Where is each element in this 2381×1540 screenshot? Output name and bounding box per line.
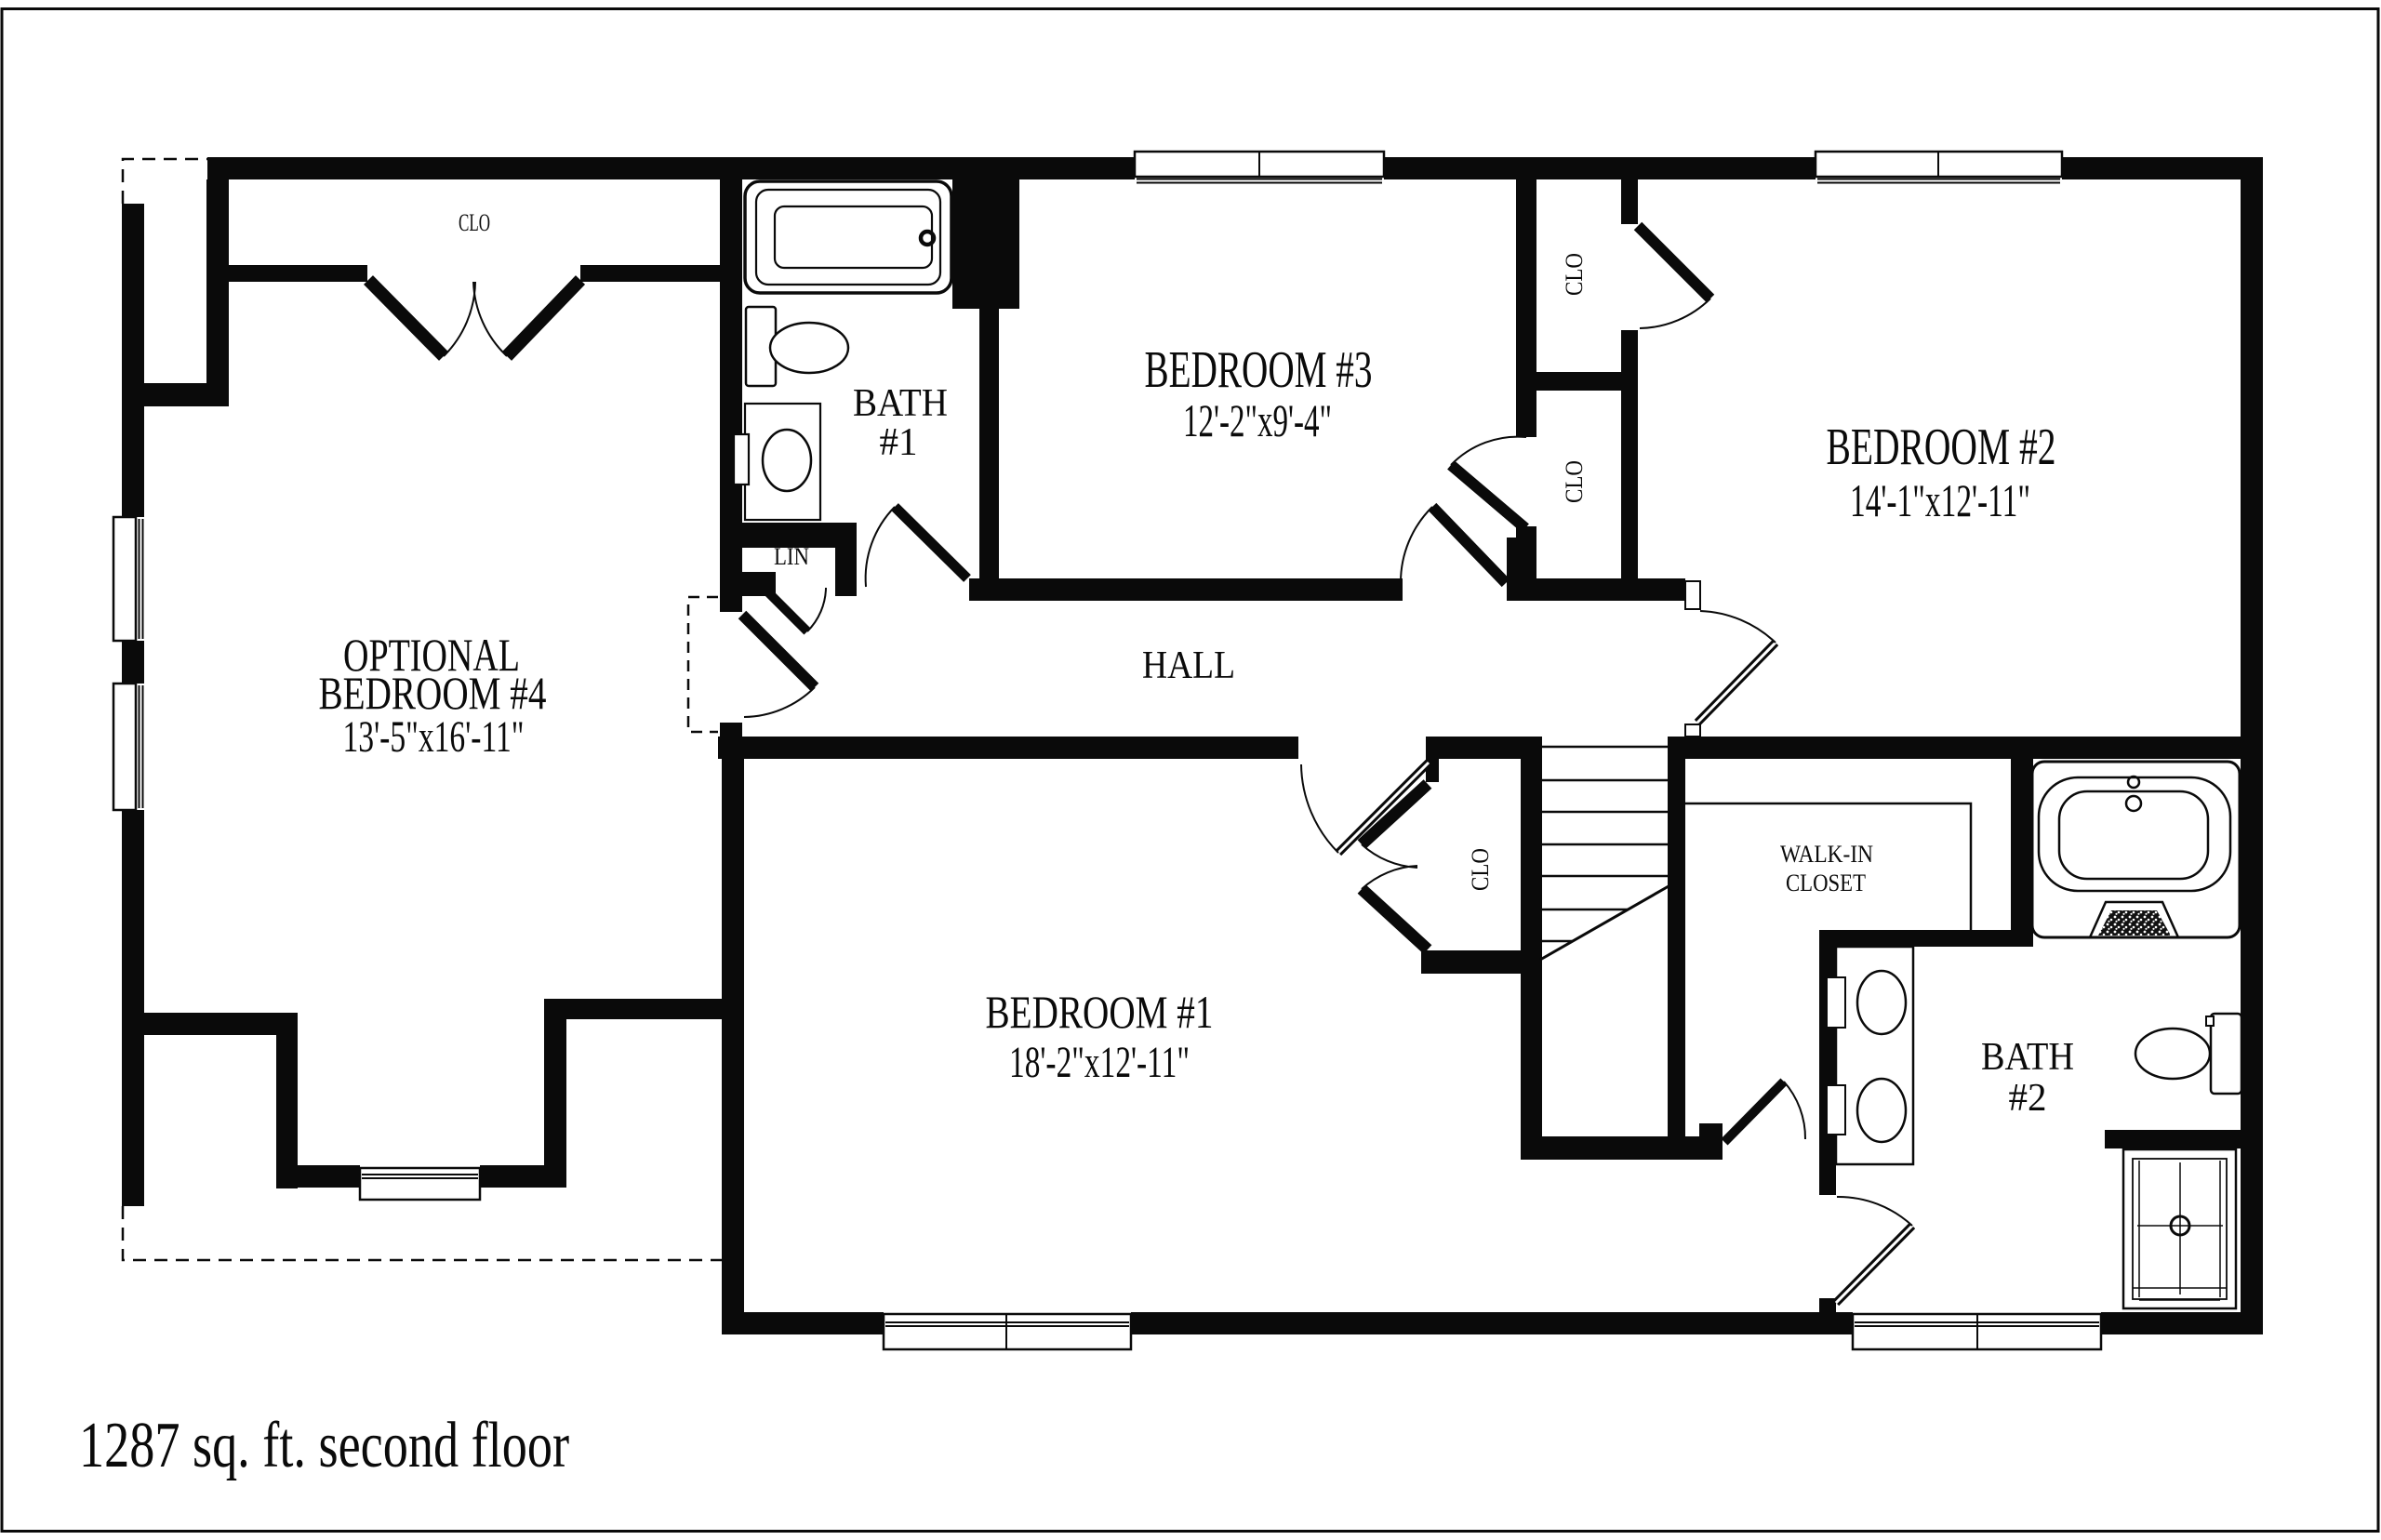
svg-text:BEDROOM #1: BEDROOM #1 (986, 986, 1214, 1038)
svg-text:BEDROOM #3: BEDROOM #3 (1145, 341, 1373, 399)
svg-text:1287 sq. ft. second floor: 1287 sq. ft. second floor (79, 1410, 569, 1481)
svg-text:BATH: BATH (1981, 1036, 2074, 1079)
svg-text:12'-2"x9'-4": 12'-2"x9'-4" (1183, 394, 1332, 446)
svg-text:CLO: CLO (459, 209, 490, 236)
svg-text:CLOSET: CLOSET (1786, 870, 1866, 896)
svg-text:14'-1"x12'-11": 14'-1"x12'-11" (1850, 474, 2030, 526)
svg-text:13'-5"x16'-11": 13'-5"x16'-11" (343, 712, 525, 762)
svg-text:BEDROOM #2: BEDROOM #2 (1827, 418, 2056, 476)
svg-text:#1: #1 (880, 421, 918, 464)
svg-text:LIN: LIN (774, 543, 809, 570)
svg-text:#2: #2 (2009, 1077, 2047, 1120)
svg-text:WALK-IN: WALK-IN (1780, 841, 1873, 868)
svg-text:18'-2"x12'-11": 18'-2"x12'-11" (1009, 1038, 1190, 1087)
svg-text:BATH: BATH (853, 382, 948, 425)
svg-text:CLO: CLO (1561, 460, 1588, 503)
svg-text:CLO: CLO (1467, 848, 1494, 891)
svg-text:BEDROOM #4: BEDROOM #4 (319, 667, 547, 719)
svg-text:HALL: HALL (1142, 644, 1235, 687)
svg-text:CLO: CLO (1561, 253, 1588, 296)
